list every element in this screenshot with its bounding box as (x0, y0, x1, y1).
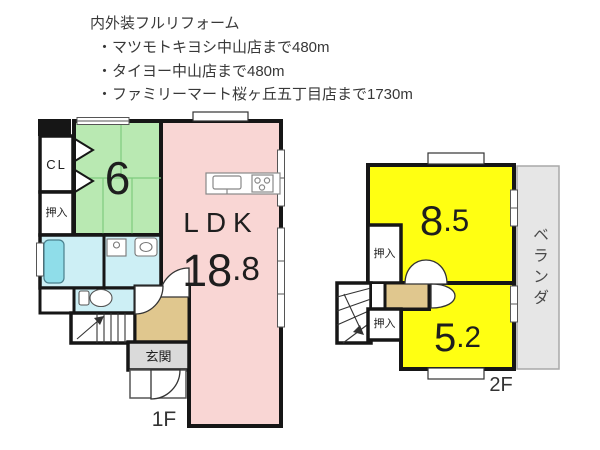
page-title: 内外装フルリフォーム (90, 12, 240, 33)
ldk-label: LDK (161, 205, 281, 241)
tatami-size-label: 6 (74, 121, 161, 235)
window-bump-ldk (193, 112, 248, 121)
kitchen-counter (206, 173, 280, 194)
veranda-label: ベランダ (517, 166, 559, 369)
toilet (79, 290, 112, 307)
closet-cl-label: CL (40, 136, 73, 192)
oshiire-2f-top-label: 押入 (368, 225, 401, 283)
floor-1f-label: 1F (138, 406, 190, 432)
room-52-size-label: 5.2 (401, 307, 514, 369)
wall-block (38, 119, 71, 136)
window-bump-85 (428, 153, 484, 164)
bathtub (44, 240, 64, 283)
genkan-label: 玄関 (128, 342, 189, 370)
poi-distance-item: ・ファミリーマート桜ヶ丘五丁目店まで1730m (97, 83, 413, 104)
floor-plan-page: 内外装フルリフォーム ・マツモトキヨシ中山店まで480m ・タイヨー中山店まで4… (0, 0, 600, 450)
landing-2f (371, 283, 385, 309)
laundry-sink (135, 238, 157, 256)
floor-2f-label: 2F (475, 372, 527, 398)
oshiire-1f-label: 押入 (40, 192, 73, 235)
poi-distance-item: ・タイヨー中山店まで480m (97, 60, 285, 81)
oshiire-2f-bottom-label: 押入 (368, 309, 401, 340)
poi-distance-item: ・マツモトキヨシ中山店まで480m (97, 36, 330, 57)
washbasin (107, 239, 126, 256)
nook (40, 288, 74, 313)
ldk-size-label: 18.8 (161, 243, 281, 297)
hallway-2f (385, 283, 429, 309)
kitchen-sink (213, 176, 241, 189)
